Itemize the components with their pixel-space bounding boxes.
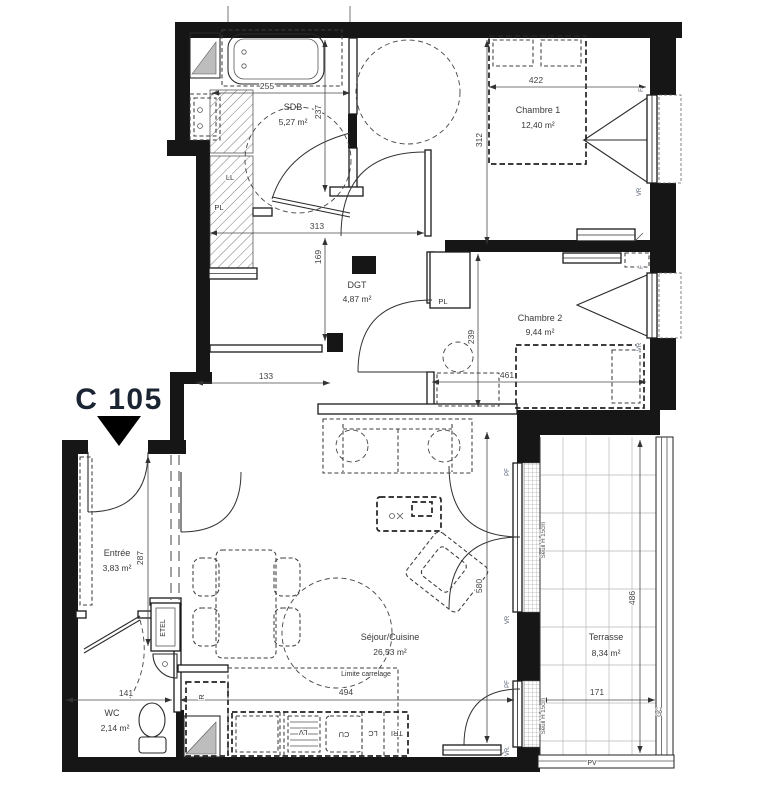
room-label-sejour: Séjour/Cuisine [361, 632, 420, 642]
dim-terrasse-width: 171 [590, 687, 604, 697]
wc-door [84, 616, 144, 698]
room-area-entree: 3,83 m² [103, 563, 132, 573]
dim-chambre1-height: 312 [474, 133, 484, 147]
sdb-door [272, 133, 350, 217]
tag-vr-pf2: VR [505, 747, 511, 756]
dim-sejour-height: 580 [474, 579, 484, 593]
tag-cu: CU [339, 730, 350, 739]
dim-chambre2-height: 239 [466, 330, 476, 344]
room-area-chambre2: 9,44 m² [526, 327, 555, 337]
window-pf2 [513, 681, 540, 747]
annotation-seuil-1: Seuil H 15cm [540, 522, 547, 559]
sejour-furniture [193, 419, 509, 755]
tag-f-chambre2: F [639, 265, 645, 269]
hall-door [181, 472, 241, 532]
tag-vr-chambre1: VR [637, 187, 643, 196]
tag-tri: TRI [391, 729, 403, 738]
doors-layer [84, 133, 520, 745]
dim-chambre2-width: 461 [500, 370, 514, 380]
kitchen-counter [186, 682, 408, 756]
dim-dgt-width: 313 [310, 221, 324, 231]
floor-plan-page: C 105 SDB 5,27 m² Chambre 1 12,40 m² DGT… [0, 0, 765, 800]
room-area-sdb: 5,27 m² [279, 117, 308, 127]
dim-sdb-width: 255 [260, 81, 274, 91]
room-area-sejour: 26,53 m² [373, 647, 407, 657]
entrance-door [88, 452, 148, 512]
dim-sdb-height: 237 [313, 105, 323, 119]
tag-f-chambre1: F [639, 88, 645, 92]
room-area-dgt: 4,87 m² [343, 294, 372, 304]
annotation-gc: GC [656, 707, 663, 717]
terrasse-tiles [540, 437, 656, 755]
room-label-chambre1: Chambre 1 [516, 105, 561, 115]
tag-ll: LL [226, 173, 234, 182]
partition-walls-layer [76, 38, 517, 712]
room-label-terrasse: Terrasse [589, 632, 624, 642]
annotation-limite-carrelage: Limite carrelage [341, 671, 391, 678]
window-chambre1 [584, 95, 681, 183]
dim-wc-width: 141 [119, 688, 133, 698]
tag-vr-pf1: VR [505, 615, 511, 624]
dim-dgt-height: 169 [313, 250, 323, 264]
window-chambre2 [577, 273, 681, 338]
room-label-entree: Entrée [104, 548, 131, 558]
dim-terrasse-height: 486 [627, 591, 637, 605]
unit-label: C 105 [75, 383, 163, 416]
dim-entree-height: 287 [135, 551, 145, 565]
dim-chambre1-width: 422 [529, 75, 543, 85]
tag-fridge: R [197, 694, 206, 700]
terrasse-french-doors [449, 466, 520, 745]
entrance-marker-triangle [97, 416, 141, 446]
annotation-seuil-2: Seuil H 15cm [540, 698, 547, 735]
room-label-sdb: SDB [284, 102, 303, 112]
dim-hall-width: 133 [259, 371, 273, 381]
tag-vr-chambre2: VR [637, 342, 643, 351]
room-area-chambre1: 12,40 m² [521, 120, 555, 130]
tag-lc: LC [368, 729, 378, 738]
chambre1-furniture [489, 36, 643, 241]
tag-etel: ETEL [160, 619, 167, 637]
tag-lv: LV [299, 728, 308, 737]
tag-pf2: PF [505, 680, 511, 688]
dim-sejour-width: 494 [339, 687, 353, 697]
chambre2-door [358, 300, 432, 372]
annotation-pv: PV [587, 760, 597, 767]
tag-pl-chambre2: PL [438, 297, 447, 306]
terrasse-railing [538, 437, 674, 768]
room-area-terrasse: 8,34 m² [592, 648, 621, 658]
tag-pl-sdb: PL [214, 203, 223, 212]
room-label-chambre2: Chambre 2 [518, 313, 563, 323]
tag-pf1: PF [505, 468, 511, 476]
room-area-wc: 2,14 m² [101, 723, 130, 733]
room-label-wc: WC [105, 708, 120, 718]
room-label-dgt: DGT [348, 280, 368, 290]
floor-plan-canvas: C 105 SDB 5,27 m² Chambre 1 12,40 m² DGT… [0, 0, 765, 800]
